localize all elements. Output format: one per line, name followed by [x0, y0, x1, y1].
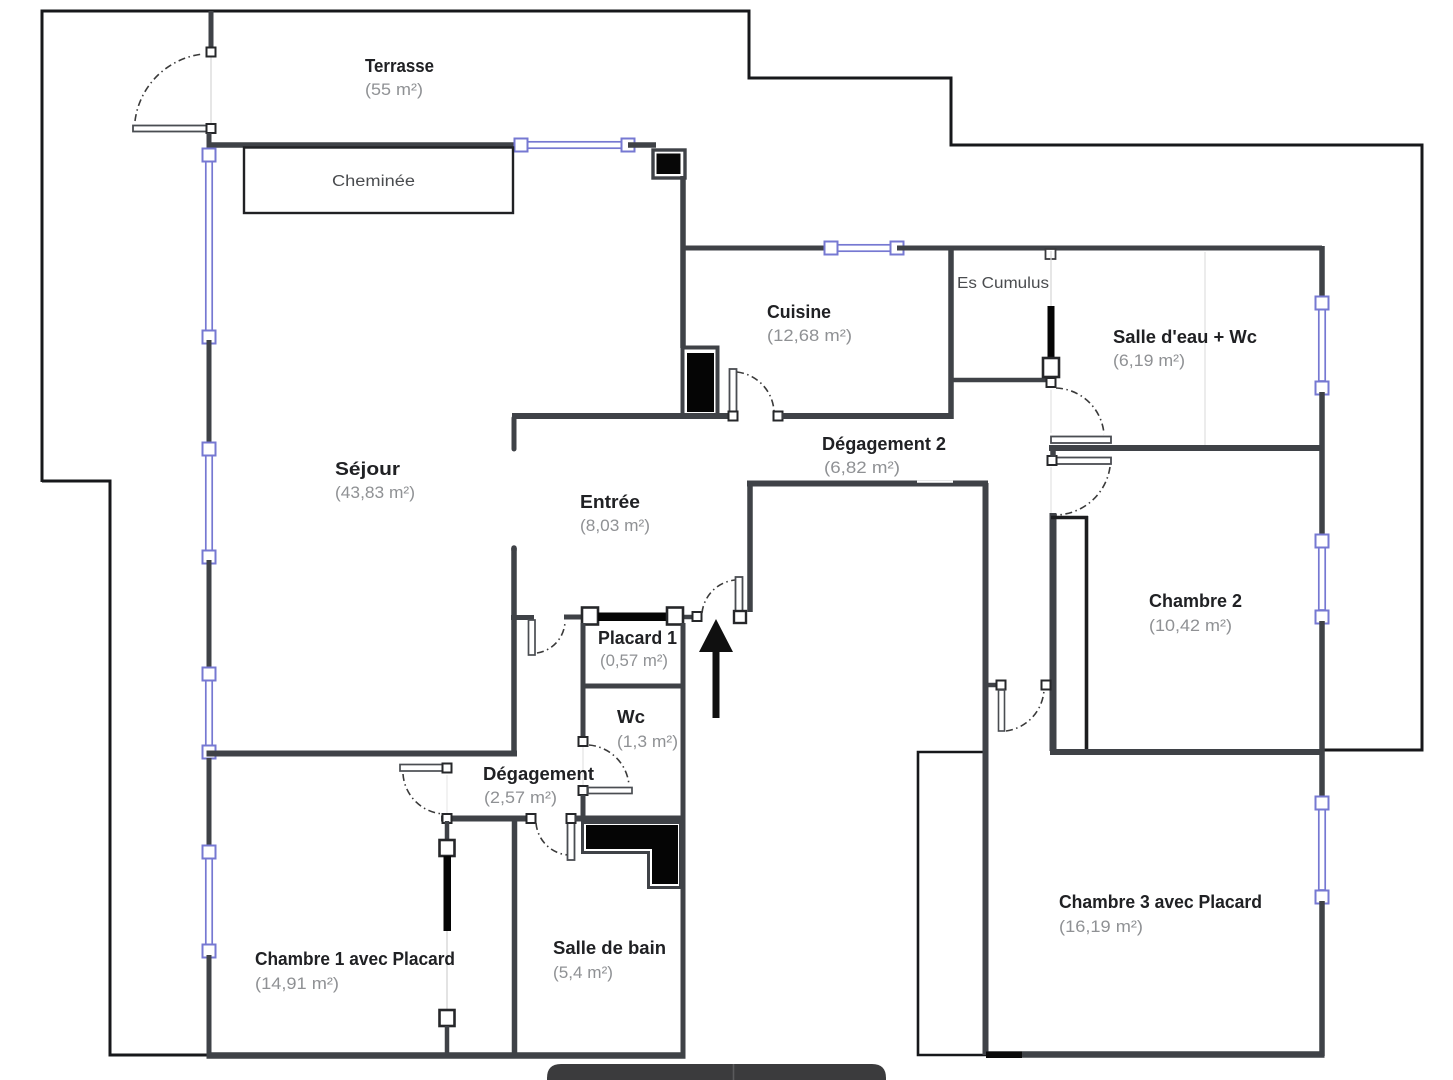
svg-text:(2,57 m²): (2,57 m²) [484, 788, 557, 807]
svg-text:(6,82 m²): (6,82 m²) [824, 458, 900, 477]
svg-text:(16,19 m²): (16,19 m²) [1059, 917, 1143, 936]
svg-text:Terrasse: Terrasse [365, 56, 434, 76]
svg-text:(5,4 m²): (5,4 m²) [553, 963, 613, 982]
svg-text:(6,19 m²): (6,19 m²) [1113, 351, 1185, 370]
svg-text:Chambre 3 avec Placard: Chambre 3 avec Placard [1059, 892, 1262, 912]
svg-text:Salle d'eau + Wc: Salle d'eau + Wc [1113, 327, 1257, 347]
svg-text:(43,83 m²): (43,83 m²) [335, 483, 415, 502]
svg-text:(12,68 m²): (12,68 m²) [767, 326, 852, 345]
svg-text:(55 m²): (55 m²) [365, 80, 423, 99]
svg-text:(0,57 m²): (0,57 m²) [600, 651, 668, 670]
svg-text:Placard 1: Placard 1 [598, 628, 677, 648]
svg-text:Wc: Wc [617, 707, 645, 727]
svg-text:(14,91 m²): (14,91 m²) [255, 974, 339, 993]
svg-text:Dégagement: Dégagement [483, 764, 594, 784]
svg-text:(8,03 m²): (8,03 m²) [580, 516, 650, 535]
svg-text:(10,42 m²): (10,42 m²) [1149, 616, 1232, 635]
svg-text:Chambre 2: Chambre 2 [1149, 591, 1242, 611]
svg-text:Dégagement 2: Dégagement 2 [822, 434, 946, 454]
svg-text:Chambre 1 avec Placard: Chambre 1 avec Placard [255, 949, 455, 969]
svg-text:Entrée: Entrée [580, 492, 640, 512]
svg-text:Cheminée: Cheminée [332, 173, 415, 190]
svg-text:Salle de bain: Salle de bain [553, 938, 666, 958]
svg-text:Cuisine: Cuisine [767, 302, 831, 322]
svg-text:(1,3 m²): (1,3 m²) [617, 732, 678, 751]
svg-text:Es Cumulus: Es Cumulus [957, 275, 1049, 292]
svg-text:Séjour: Séjour [335, 459, 400, 479]
